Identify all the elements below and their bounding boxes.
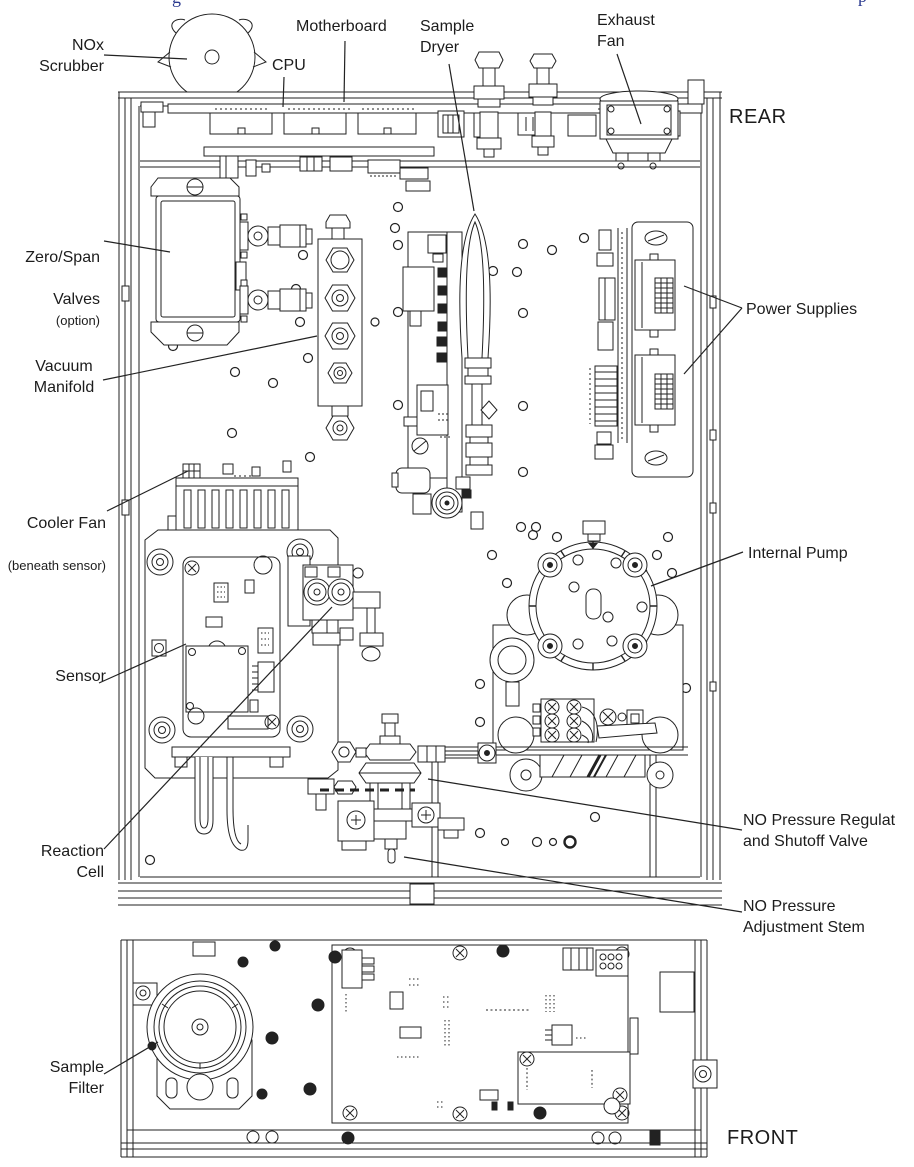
instrument-internal-layout-diagram: g p NOx Scrubber CPU Motherboard Sample … <box>0 0 914 1167</box>
sample-dryer-drawing <box>392 214 497 529</box>
front-compartment-drawing <box>133 941 717 1144</box>
internal-pump-drawing <box>428 521 688 877</box>
label-sample-filter: Sample Filter <box>36 1057 104 1099</box>
label-cooler-fan: Cooler Fan (beneath sensor) <box>0 492 106 576</box>
zero-span-option: (option) <box>56 313 100 328</box>
label-no-pressure-adjustment-stem: NO Pressure Adjustment Stem <box>743 896 903 938</box>
caption-fragment-right: p <box>858 0 867 7</box>
cooler-fan-drawing <box>168 461 298 540</box>
label-vacuum-manifold: Vacuum Manifold <box>22 356 106 398</box>
label-internal-pump: Internal Pump <box>748 543 848 564</box>
label-motherboard: Motherboard <box>296 16 387 37</box>
label-exhaust-fan: Exhaust Fan <box>597 10 655 52</box>
vacuum-manifold-drawing <box>318 215 362 440</box>
label-sample-dryer: Sample Dryer <box>420 16 474 58</box>
label-front: FRONT <box>727 1126 798 1150</box>
power-supplies-drawing <box>590 222 693 477</box>
zero-span-valves-drawing <box>151 178 312 345</box>
label-cpu: CPU <box>272 55 306 76</box>
cooler-fan-line1: Cooler Fan <box>27 515 106 532</box>
label-no-pressure-regulator: NO Pressure Regulat and Shutoff Valve <box>743 810 914 852</box>
zero-span-line1: Zero/Span <box>25 249 100 266</box>
zero-span-line2: Valves <box>53 291 100 308</box>
label-reaction-cell: Reaction Cell <box>24 841 104 883</box>
diagram-canvas <box>0 0 914 1167</box>
label-rear: REAR <box>729 105 787 129</box>
label-power-supplies: Power Supplies <box>746 299 857 320</box>
label-sensor: Sensor <box>30 666 106 687</box>
caption-fragment-left: g <box>172 0 181 8</box>
cooler-fan-line2: (beneath sensor) <box>8 558 106 573</box>
label-nox-scrubber: NOx Scrubber <box>2 35 104 77</box>
nox-scrubber-drawing <box>158 14 266 100</box>
label-zero-span-valves: Zero/Span Valves (option) <box>0 226 100 331</box>
